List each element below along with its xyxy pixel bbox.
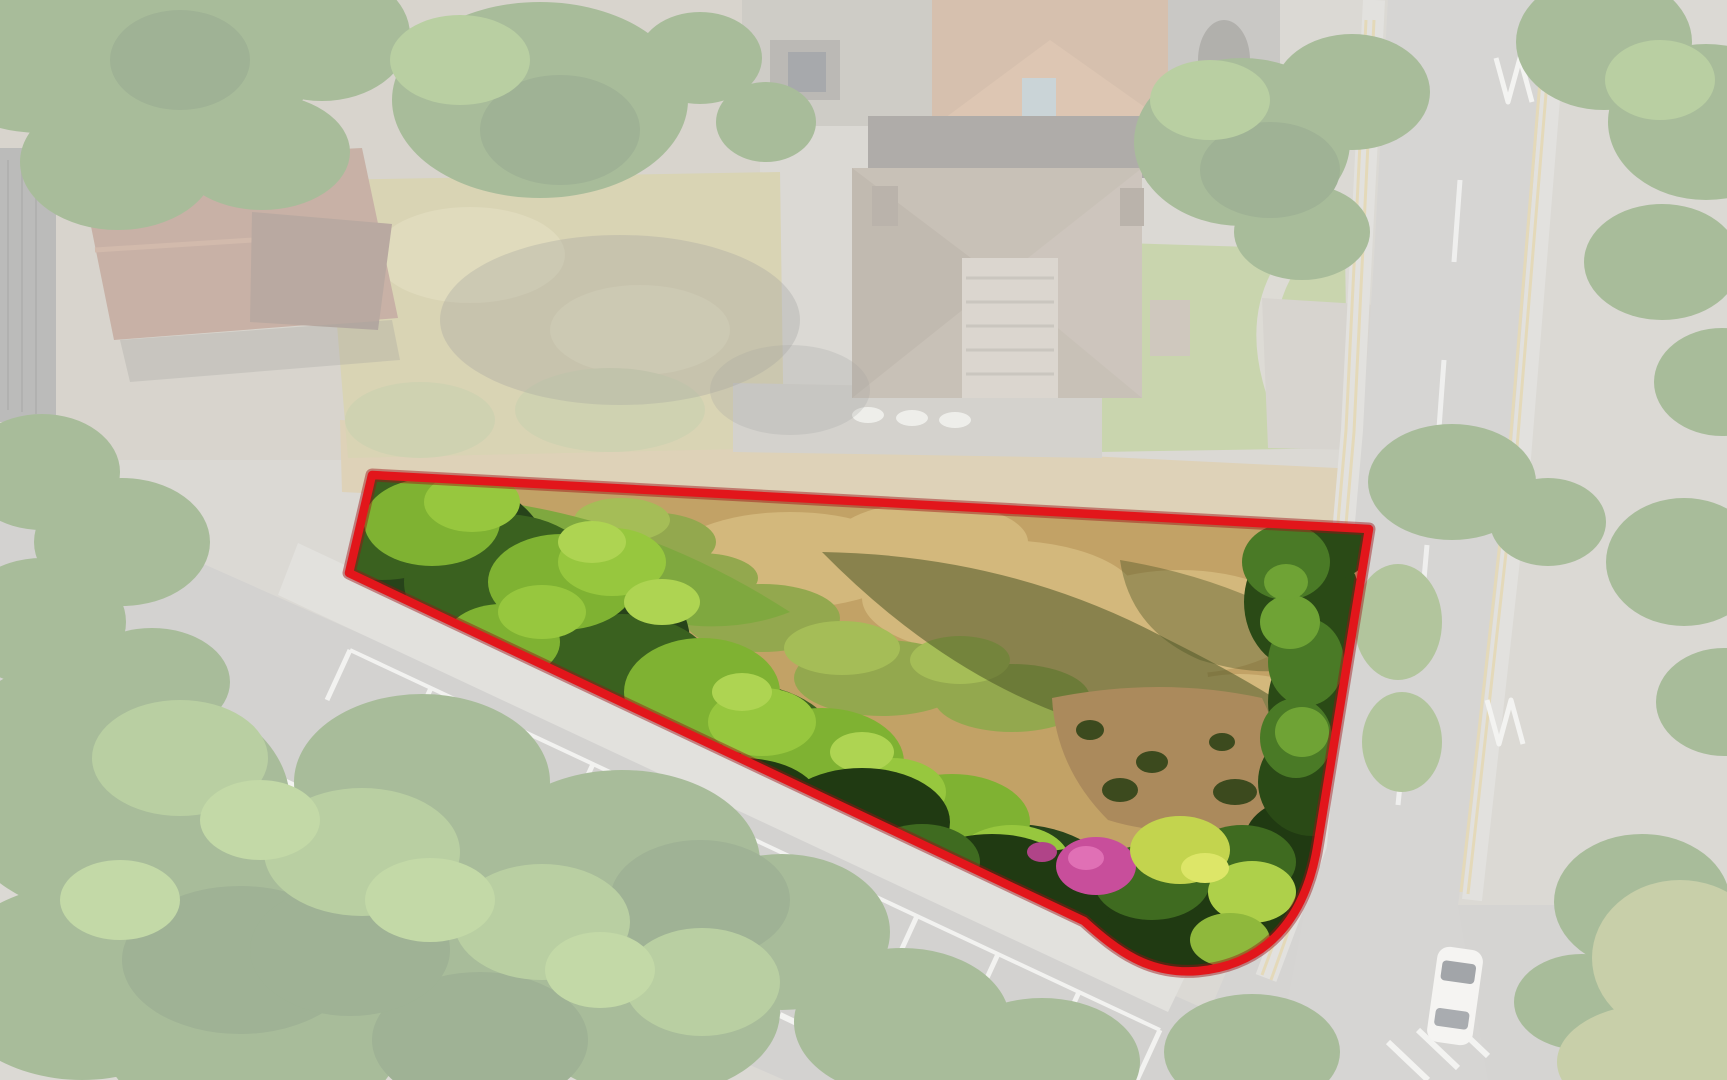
plot-canopy-lime xyxy=(830,732,894,772)
plot-canopy-lime xyxy=(558,521,626,563)
aerial-photo-canvas xyxy=(0,0,1727,1080)
plot-canopy-brighter xyxy=(498,585,586,639)
plot-canopy-lime xyxy=(712,673,772,711)
aerial-photograph xyxy=(0,0,1727,1080)
pink-flower-highlight xyxy=(1068,846,1104,870)
plot-canopy-lime xyxy=(624,579,700,625)
meadow-patch-green-bright xyxy=(784,621,900,675)
plot-right-hedge-light xyxy=(1275,707,1329,757)
dirt-plants xyxy=(1209,733,1235,751)
pink-flower-small xyxy=(1027,842,1057,862)
dirt-plants xyxy=(1136,751,1168,773)
yellow-bush-highlight xyxy=(1181,853,1229,883)
dirt-plants xyxy=(1076,720,1104,740)
dirt-plants xyxy=(1102,778,1138,802)
plot-right-hedge-light xyxy=(1260,595,1320,649)
plot-right-hedge-light xyxy=(1264,564,1308,600)
dirt-plants xyxy=(1213,779,1257,805)
